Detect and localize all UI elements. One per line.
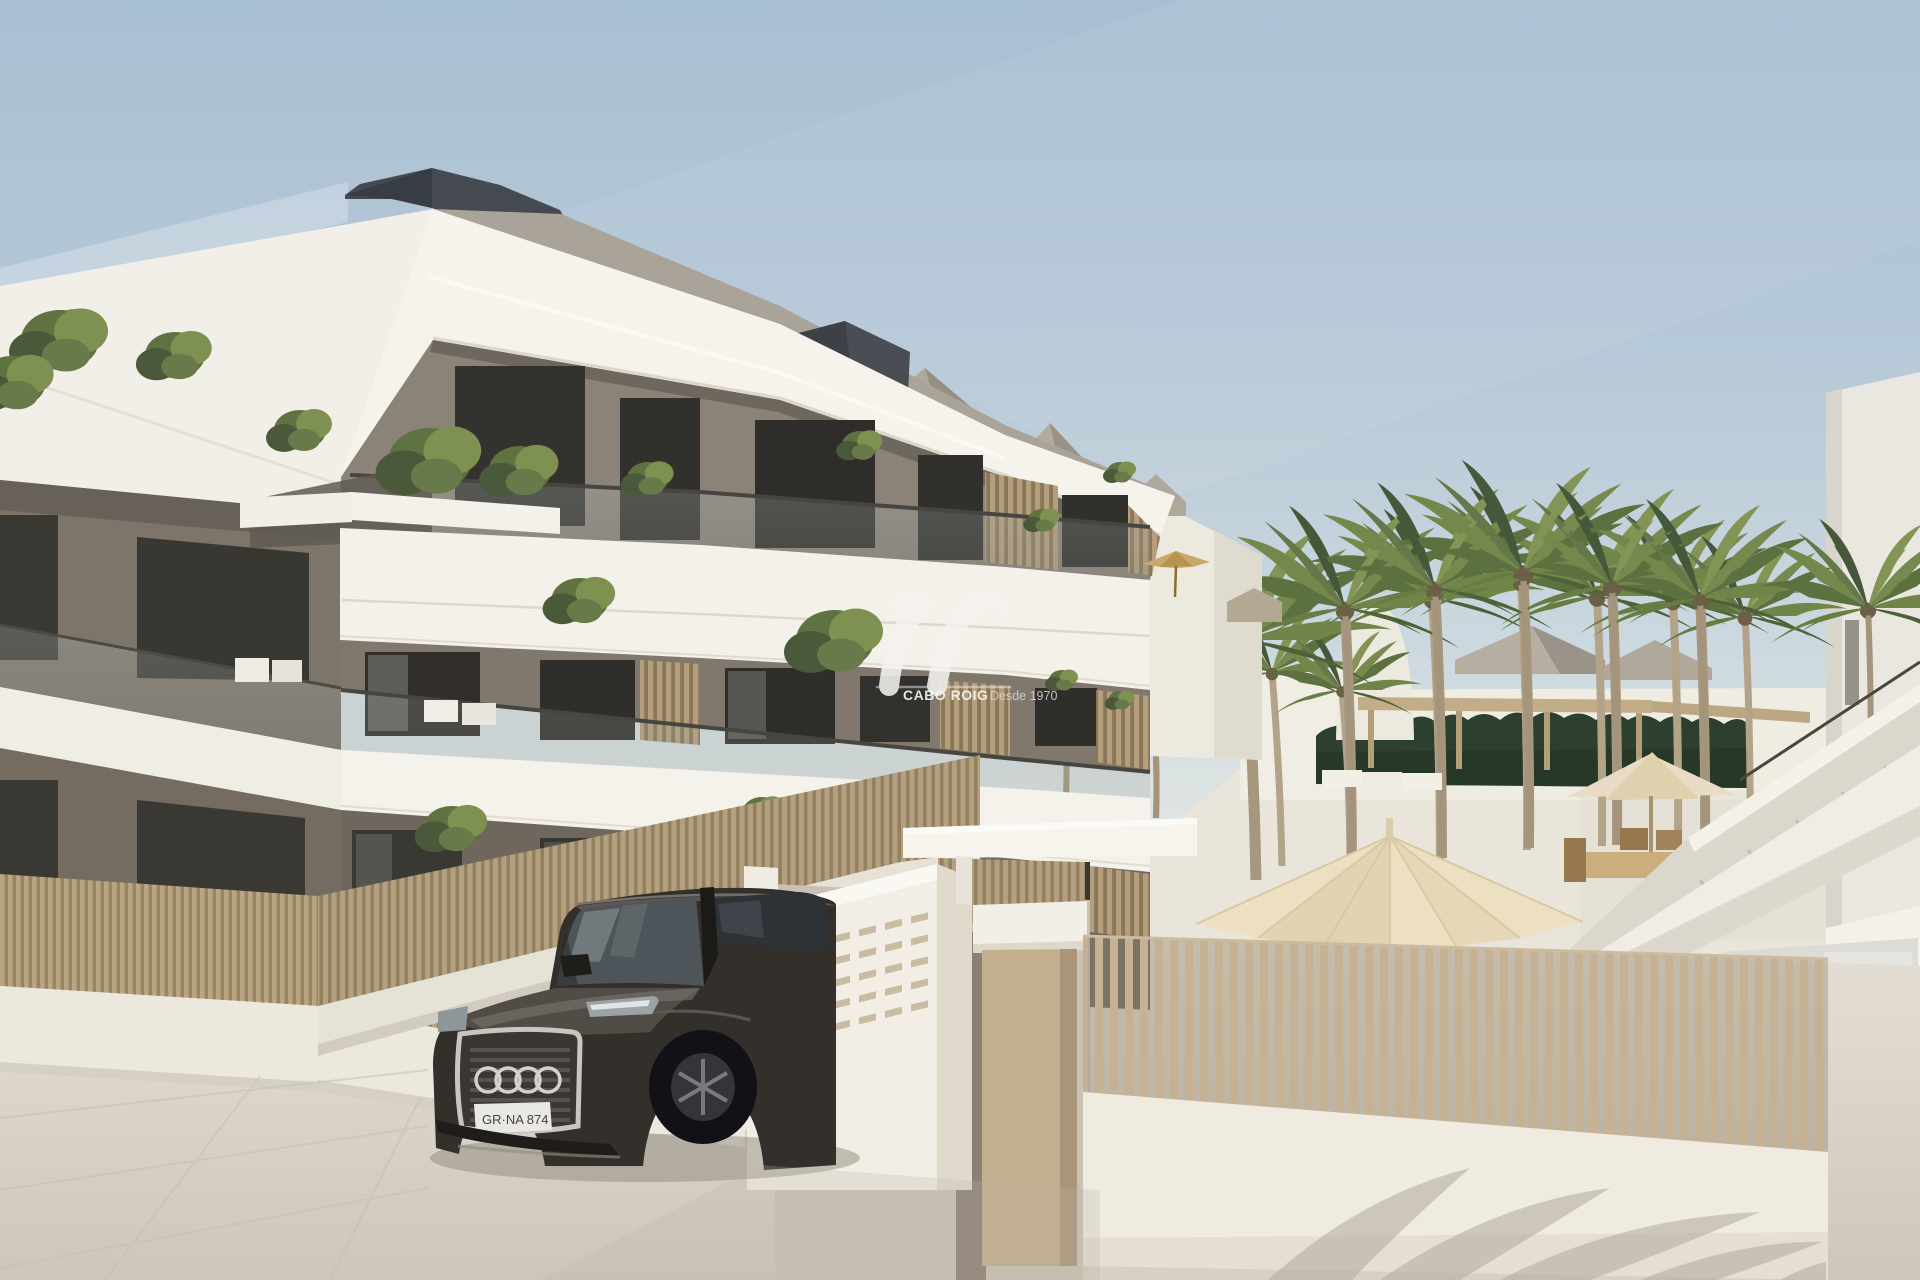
svg-text:GR·NA 874: GR·NA 874 (482, 1112, 548, 1127)
svg-text:CABO ROIG: CABO ROIG (903, 687, 988, 703)
svg-text:Desde 1970: Desde 1970 (990, 689, 1057, 703)
